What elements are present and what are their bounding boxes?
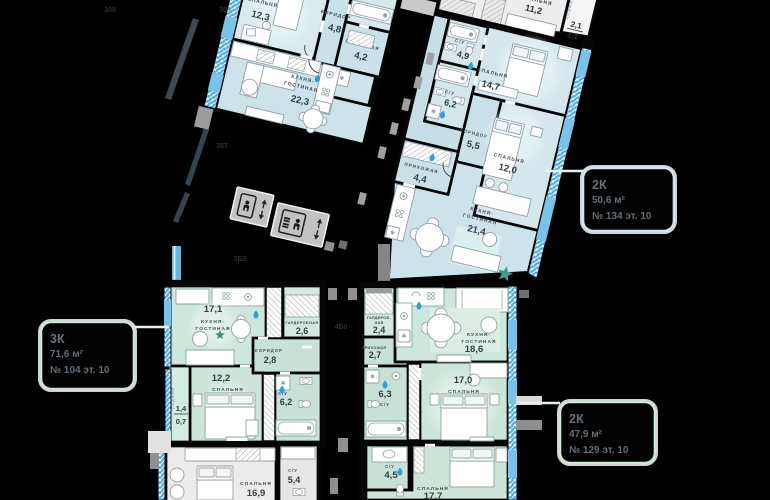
- svg-text:СПАЛЬНЯ: СПАЛЬНЯ: [212, 387, 244, 393]
- svg-text:6,2: 6,2: [280, 397, 293, 407]
- svg-text:2К: 2К: [569, 412, 584, 426]
- svg-text:КОРИДОР: КОРИДОР: [255, 348, 283, 353]
- svg-text:12,2: 12,2: [212, 373, 231, 384]
- svg-text:1,4: 1,4: [176, 404, 187, 413]
- svg-text:№ 129 эт. 10: № 129 эт. 10: [569, 445, 629, 456]
- svg-text:ГАРДЕРОБ-: ГАРДЕРОБ-: [367, 316, 392, 320]
- svg-text:4,5: 4,5: [384, 470, 398, 481]
- svg-text:№ 104 эт. 10: № 104 эт. 10: [50, 365, 110, 376]
- svg-text:✱: ✱: [280, 380, 285, 387]
- svg-text:ГАРДЕРОБНАЯ: ГАРДЕРОБНАЯ: [286, 321, 319, 325]
- svg-text:2,4: 2,4: [373, 325, 386, 335]
- svg-text:С/У: С/У: [288, 468, 298, 473]
- svg-text:КУХНЯ-: КУХНЯ-: [201, 319, 225, 325]
- svg-text:2К: 2К: [592, 178, 607, 192]
- svg-text:18,6: 18,6: [465, 344, 484, 355]
- svg-text:✱: ✱: [370, 374, 375, 381]
- svg-text:17,0: 17,0: [454, 375, 473, 386]
- svg-text:3Б2: 3Б2: [234, 256, 247, 263]
- svg-text:357: 357: [216, 143, 228, 150]
- svg-text:17,7: 17,7: [424, 491, 443, 500]
- svg-text:2,7: 2,7: [369, 350, 382, 360]
- svg-text:47,9 м²: 47,9 м²: [569, 429, 603, 440]
- svg-text:0,7: 0,7: [176, 417, 186, 426]
- svg-text:50,6 м²: 50,6 м²: [592, 195, 626, 206]
- svg-text:С/У: С/У: [380, 402, 390, 407]
- svg-text:ЛОДЖИЯ: ЛОДЖИЯ: [171, 387, 175, 409]
- svg-text:4Б0: 4Б0: [335, 324, 348, 331]
- svg-text:3К: 3К: [50, 332, 65, 346]
- svg-text:2,6: 2,6: [296, 326, 309, 336]
- svg-text:С/У: С/У: [385, 464, 395, 469]
- svg-text:2,8: 2,8: [264, 355, 277, 365]
- svg-text:306: 306: [219, 7, 231, 14]
- svg-text:✱: ✱: [401, 333, 406, 340]
- svg-text:6,3: 6,3: [378, 389, 391, 400]
- svg-text:71,6 м²: 71,6 м²: [50, 349, 84, 360]
- svg-text:СПАЛЬНЯ: СПАЛЬНЯ: [240, 481, 272, 487]
- svg-text:№ 134 эт. 10: № 134 эт. 10: [592, 211, 652, 222]
- svg-text:КУХНЯ-: КУХНЯ-: [467, 332, 491, 338]
- svg-text:17,1: 17,1: [204, 304, 223, 315]
- svg-text:305: 305: [104, 7, 116, 14]
- svg-text:5,4: 5,4: [288, 475, 301, 485]
- svg-text:16,9: 16,9: [247, 488, 266, 499]
